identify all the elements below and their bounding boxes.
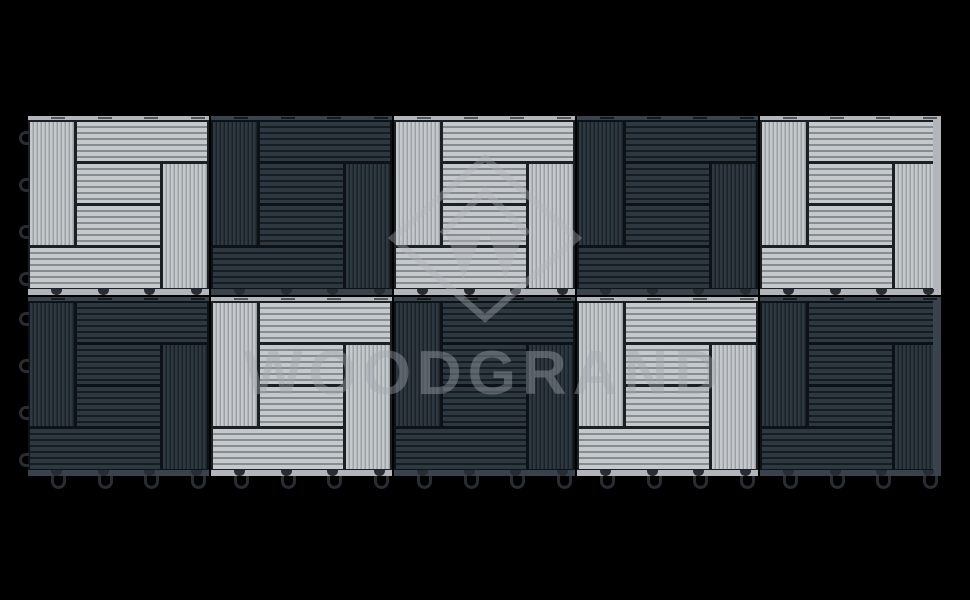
tile-slat-pattern: [394, 301, 575, 470]
top-horizontal-slats: [626, 303, 757, 342]
middle-upper-horizontal-slats: [260, 345, 344, 384]
deck-tile-dark-r2-c1: [28, 297, 209, 476]
tile-slat-pattern: [760, 301, 941, 470]
connector-slot: [417, 117, 431, 119]
connector-loop: [557, 289, 568, 295]
middle-lower-horizontal-slats: [260, 206, 344, 245]
top-horizontal-slats: [626, 122, 757, 161]
connector-loop: [417, 289, 428, 295]
connector-slot: [830, 298, 844, 300]
right-vertical-slats: [163, 345, 207, 469]
bottom-horizontal-slats: [213, 429, 344, 468]
tile-bottom-edge: [760, 289, 941, 295]
connector-loop: [281, 289, 292, 295]
connector-slot: [144, 298, 158, 300]
tile-slat-pattern: [577, 120, 758, 289]
bottom-connector-foot: [647, 476, 662, 489]
connector-loop: [510, 289, 521, 295]
connector-loop: [98, 289, 109, 295]
tile-top-edge: [760, 116, 941, 120]
tile-bottom-edge: [394, 289, 575, 295]
bottom-horizontal-slats: [396, 248, 527, 287]
left-vertical-slats: [213, 122, 257, 246]
bottom-horizontal-slats: [30, 429, 161, 468]
connector-loop: [191, 289, 202, 295]
tile-top-edge: [394, 116, 575, 120]
middle-lower-horizontal-slats: [809, 387, 893, 426]
side-connector-tab: [19, 359, 29, 373]
connector-loop: [234, 289, 245, 295]
middle-upper-horizontal-slats: [260, 164, 344, 203]
tile-top-edge: [760, 297, 941, 301]
connector-slot: [281, 117, 295, 119]
bottom-connector-foot: [281, 476, 296, 489]
tile-slat-pattern: [28, 120, 209, 289]
connector-slot: [51, 117, 65, 119]
bottom-connector-foot: [417, 476, 432, 489]
right-vertical-slats: [163, 164, 207, 288]
connector-slot: [144, 117, 158, 119]
bottom-connector-foot: [144, 476, 159, 489]
connector-loop: [876, 289, 887, 295]
connector-slot: [647, 298, 661, 300]
connector-slot: [923, 298, 937, 300]
middle-lower-horizontal-slats: [809, 206, 893, 245]
connector-slot: [647, 117, 661, 119]
deck-tile-light-r1-c3: [394, 116, 575, 295]
connector-slot: [191, 117, 205, 119]
bottom-horizontal-slats: [579, 248, 710, 287]
product-image-canvas: WOODGRAND: [0, 0, 970, 600]
bottom-connector-foot: [740, 476, 755, 489]
bottom-connector-foot: [783, 476, 798, 489]
connector-loop: [144, 289, 155, 295]
connector-loop: [740, 289, 751, 295]
side-connector-tab: [19, 453, 29, 467]
top-horizontal-slats: [443, 122, 574, 161]
right-vertical-slats: [712, 164, 756, 288]
tile-top-edge: [394, 297, 575, 301]
connector-slot: [740, 117, 754, 119]
left-vertical-slats: [762, 122, 806, 246]
middle-upper-horizontal-slats: [77, 164, 161, 203]
tile-side-face: [933, 301, 941, 470]
top-horizontal-slats: [443, 303, 574, 342]
tile-bottom-edge: [28, 289, 209, 295]
left-vertical-slats: [396, 303, 440, 427]
side-connector-tab: [19, 272, 29, 286]
top-horizontal-slats: [77, 303, 208, 342]
deck-tile-grid: [28, 116, 941, 476]
middle-lower-horizontal-slats: [443, 206, 527, 245]
connector-slot: [557, 117, 571, 119]
bottom-connector-foot: [98, 476, 113, 489]
left-vertical-slats: [579, 303, 623, 427]
bottom-connector-foot: [600, 476, 615, 489]
left-vertical-slats: [762, 303, 806, 427]
deck-tile-light-r1-c1: [28, 116, 209, 295]
left-vertical-slats: [213, 303, 257, 427]
bottom-horizontal-slats: [762, 429, 893, 468]
middle-lower-horizontal-slats: [626, 387, 710, 426]
connector-slot: [51, 298, 65, 300]
bottom-horizontal-slats: [579, 429, 710, 468]
deck-tile-light-r1-c5: [760, 116, 941, 295]
bottom-connector-foot: [830, 476, 845, 489]
tile-top-edge: [28, 116, 209, 120]
right-vertical-slats: [346, 164, 390, 288]
connector-loop: [374, 289, 385, 295]
side-connector-tab: [19, 225, 29, 239]
tile-top-edge: [211, 297, 392, 301]
connector-slot: [374, 298, 388, 300]
bottom-connector-foot: [374, 476, 389, 489]
deck-tile-light-r2-c2: [211, 297, 392, 476]
connector-loop: [693, 289, 704, 295]
connector-slot: [510, 298, 524, 300]
middle-lower-horizontal-slats: [626, 206, 710, 245]
connector-slot: [98, 298, 112, 300]
side-connector-tab: [19, 406, 29, 420]
bottom-connector-foot: [510, 476, 525, 489]
left-vertical-slats: [30, 303, 74, 427]
connector-slot: [281, 298, 295, 300]
bottom-connector-foot: [693, 476, 708, 489]
deck-tile-dark-r1-c4: [577, 116, 758, 295]
tile-side-face: [933, 120, 941, 289]
bottom-horizontal-slats: [396, 429, 527, 468]
connector-loop: [783, 289, 794, 295]
connector-loop: [923, 289, 934, 295]
tile-slat-pattern: [577, 301, 758, 470]
right-vertical-slats: [529, 345, 573, 469]
left-vertical-slats: [396, 122, 440, 246]
middle-lower-horizontal-slats: [77, 206, 161, 245]
middle-upper-horizontal-slats: [443, 345, 527, 384]
tile-slat-pattern: [211, 120, 392, 289]
bottom-horizontal-slats: [30, 248, 161, 287]
tile-bottom-edge: [577, 289, 758, 295]
tile-top-edge: [577, 297, 758, 301]
connector-slot: [191, 298, 205, 300]
top-horizontal-slats: [260, 122, 391, 161]
connector-slot: [417, 298, 431, 300]
connector-slot: [374, 117, 388, 119]
connector-slot: [876, 298, 890, 300]
tile-slat-pattern: [211, 301, 392, 470]
bottom-horizontal-slats: [762, 248, 893, 287]
bottom-connector-foot: [51, 476, 66, 489]
connector-slot: [693, 298, 707, 300]
bottom-connector-foot: [327, 476, 342, 489]
middle-lower-horizontal-slats: [443, 387, 527, 426]
connector-slot: [464, 298, 478, 300]
connector-slot: [234, 298, 248, 300]
connector-slot: [234, 117, 248, 119]
middle-upper-horizontal-slats: [626, 164, 710, 203]
top-horizontal-slats: [77, 122, 208, 161]
connector-slot: [98, 117, 112, 119]
connector-slot: [327, 117, 341, 119]
middle-lower-horizontal-slats: [77, 387, 161, 426]
connector-slot: [693, 117, 707, 119]
connector-slot: [830, 117, 844, 119]
middle-upper-horizontal-slats: [443, 164, 527, 203]
bottom-connector-foot: [464, 476, 479, 489]
tile-top-edge: [28, 297, 209, 301]
top-horizontal-slats: [809, 122, 940, 161]
connector-slot: [600, 117, 614, 119]
tile-bottom-edge: [211, 289, 392, 295]
tile-slat-pattern: [394, 120, 575, 289]
connector-slot: [327, 298, 341, 300]
connector-slot: [510, 117, 524, 119]
top-horizontal-slats: [809, 303, 940, 342]
side-connector-tab: [19, 178, 29, 192]
right-vertical-slats: [712, 345, 756, 469]
connector-slot: [740, 298, 754, 300]
middle-upper-horizontal-slats: [77, 345, 161, 384]
right-vertical-slats: [529, 164, 573, 288]
left-vertical-slats: [579, 122, 623, 246]
side-connector-tab: [19, 131, 29, 145]
bottom-horizontal-slats: [213, 248, 344, 287]
connector-loop: [647, 289, 658, 295]
connector-slot: [783, 117, 797, 119]
connector-slot: [557, 298, 571, 300]
connector-loop: [464, 289, 475, 295]
side-connector-tab: [19, 312, 29, 326]
deck-tile-light-r2-c4: [577, 297, 758, 476]
connector-slot: [464, 117, 478, 119]
middle-upper-horizontal-slats: [809, 164, 893, 203]
deck-tile-dark-r2-c5: [760, 297, 941, 476]
connector-loop: [51, 289, 62, 295]
connector-slot: [876, 117, 890, 119]
tile-slat-pattern: [760, 120, 941, 289]
connector-loop: [327, 289, 338, 295]
connector-loop: [600, 289, 611, 295]
middle-lower-horizontal-slats: [260, 387, 344, 426]
connector-slot: [923, 117, 937, 119]
top-horizontal-slats: [260, 303, 391, 342]
tile-slat-pattern: [28, 301, 209, 470]
connector-loop: [830, 289, 841, 295]
bottom-connector-foot: [234, 476, 249, 489]
middle-upper-horizontal-slats: [809, 345, 893, 384]
bottom-connector-foot: [923, 476, 938, 489]
tile-top-edge: [577, 116, 758, 120]
bottom-connector-foot: [557, 476, 572, 489]
deck-tile-dark-r1-c2: [211, 116, 392, 295]
bottom-connector-foot: [191, 476, 206, 489]
connector-slot: [600, 298, 614, 300]
middle-upper-horizontal-slats: [626, 345, 710, 384]
tile-top-edge: [211, 116, 392, 120]
deck-tile-dark-r2-c3: [394, 297, 575, 476]
left-vertical-slats: [30, 122, 74, 246]
right-vertical-slats: [346, 345, 390, 469]
connector-slot: [783, 298, 797, 300]
bottom-connector-foot: [876, 476, 891, 489]
